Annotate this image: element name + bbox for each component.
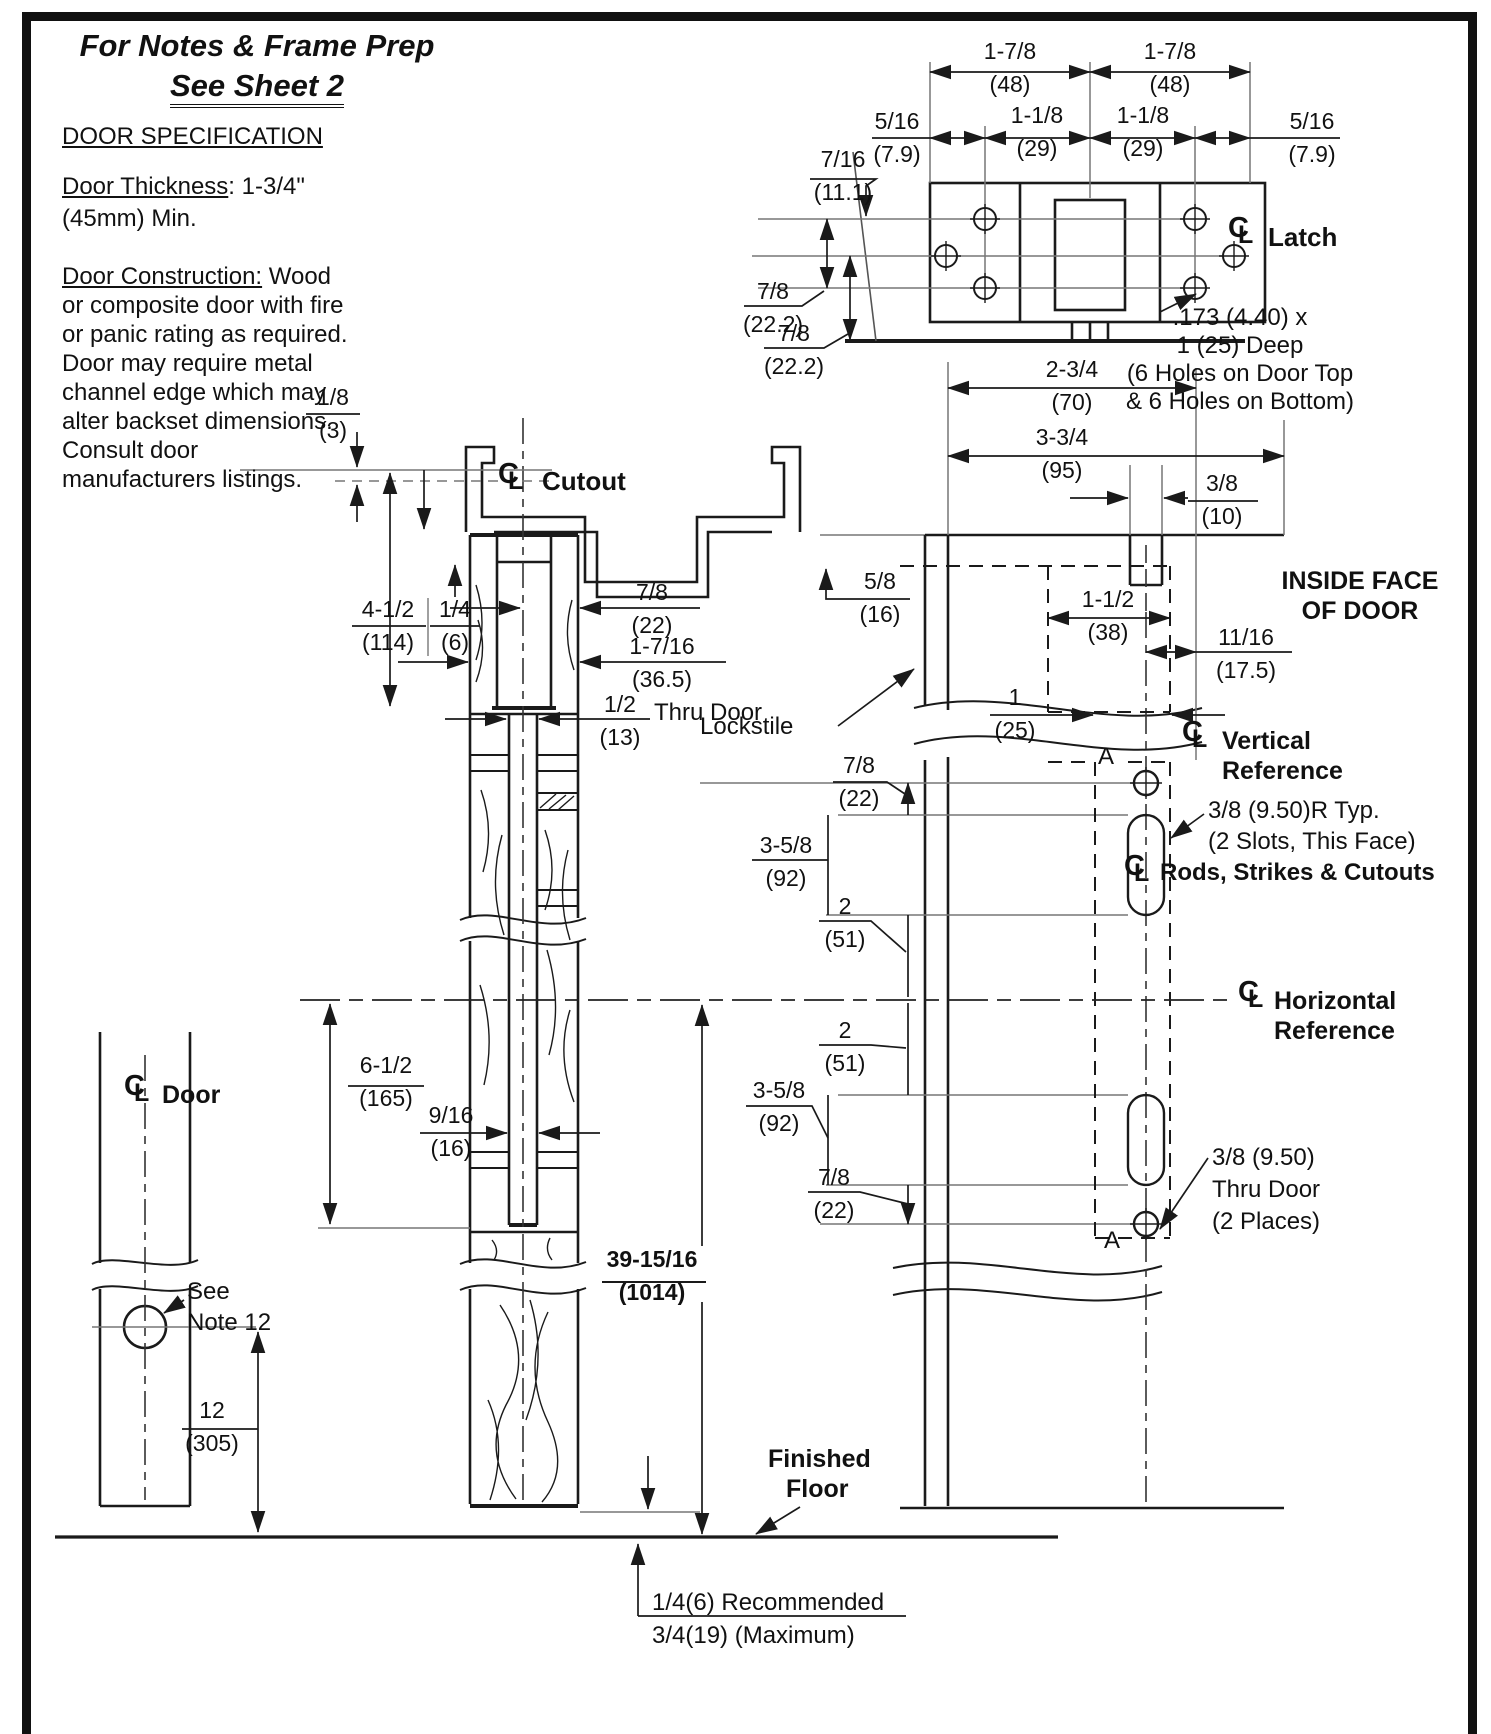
dimension-label: 1(25) — [940, 684, 1090, 743]
dimension-metric: (11.1) — [768, 179, 918, 205]
dimension-metric: (51) — [770, 1050, 920, 1076]
dimension-label: 1-1/8(29) — [1068, 102, 1218, 161]
dimension-metric: (1014) — [577, 1279, 727, 1305]
dimension-label: 1-1/2(38) — [1033, 586, 1183, 645]
latch-label: Latch — [1268, 222, 1337, 253]
dimension-metric: (51) — [770, 926, 920, 952]
dimension-metric: (22.2) — [719, 353, 869, 379]
dimension-metric: (16) — [376, 1135, 526, 1161]
dimension-value: 7/8 — [778, 320, 810, 346]
dimension-metric: (22) — [784, 785, 934, 811]
dimension-value: 1-1/8 — [1011, 102, 1063, 128]
dimension-value: 2 — [839, 1017, 852, 1043]
dimension-label: 2(51) — [770, 1017, 920, 1076]
spec-construction: Door Construction: Wood or composite doo… — [62, 262, 348, 494]
spec-heading: DOOR SPECIFICATION — [62, 122, 323, 151]
rods-label: Rods, Strikes & Cutouts — [1160, 858, 1435, 888]
dimension-metric: (165) — [311, 1085, 461, 1111]
dimension-value: 3-5/8 — [760, 832, 812, 858]
dimension-metric: (36.5) — [587, 666, 737, 692]
dimension-value: 1-1/2 — [1082, 586, 1134, 612]
dimension-metric: (22) — [759, 1197, 909, 1223]
floor-gap-note: 1/4(6) Recommended3/4(19) (Maximum) — [652, 1586, 884, 1652]
dimension-label: 3-3/4(95) — [987, 424, 1137, 483]
dimension-value: 3/8 — [1206, 470, 1238, 496]
dimension-metric: (38) — [1033, 619, 1183, 645]
dimension-value: 3-3/4 — [1036, 424, 1088, 450]
dimension-value: 7/8 — [843, 752, 875, 778]
dimension-metric: (92) — [711, 865, 861, 891]
see-note: SeeNote 12 — [187, 1276, 271, 1338]
dimension-value: 1 — [1009, 684, 1022, 710]
dimension-label: 12(305) — [137, 1397, 287, 1456]
dimension-metric: (48) — [1095, 71, 1245, 97]
cutout-label: Cutout — [542, 466, 626, 497]
horizontal-ref-label: HorizontalReference — [1274, 986, 1396, 1046]
dimension-value: 2-3/4 — [1046, 356, 1098, 382]
dimension-label: 1-7/8(48) — [935, 38, 1085, 97]
dimension-metric: (48) — [935, 71, 1085, 97]
dimension-value: 1/2 — [604, 691, 636, 717]
dimension-label: 1-7/16(36.5) — [587, 633, 737, 692]
finished-floor-label: FinishedFloor — [768, 1444, 871, 1504]
dimension-value: 5/8 — [864, 568, 896, 594]
dimension-metric: (16) — [805, 601, 955, 627]
dimension-value: 7/16 — [821, 146, 866, 172]
dimension-metric: (92) — [704, 1110, 854, 1136]
dimension-metric: (3) — [258, 417, 408, 443]
centerline-icon-horizontal-ref: CL — [1238, 976, 1272, 1016]
dimension-label: 11/16(17.5) — [1171, 624, 1321, 683]
notes-title-line1: For Notes & Frame Prep — [62, 28, 452, 64]
dimension-value: 1-7/8 — [1144, 38, 1196, 64]
dimension-value: 12 — [199, 1397, 225, 1423]
dimension-metric: (95) — [987, 457, 1137, 483]
dimension-label: 2(51) — [770, 893, 920, 952]
dimension-metric: (305) — [137, 1430, 287, 1456]
spec-thickness-line2: (45mm) Min. — [62, 204, 197, 233]
dimension-label: 6-1/2(165) — [311, 1052, 461, 1111]
marker-a-lower: A — [1104, 1226, 1120, 1255]
centerline-icon-latch: CL — [1228, 212, 1262, 252]
dimension-label: 7/8(22.2) — [719, 320, 869, 379]
dimension-metric: (17.5) — [1171, 657, 1321, 683]
centerline-icon-vertical-ref: CL — [1182, 716, 1216, 756]
centerline-icon-cutout: CL — [498, 458, 532, 498]
dimension-value: 1/8 — [317, 384, 349, 410]
vertical-ref-label: VerticalReference — [1222, 726, 1343, 786]
dimension-label: 3/8(10) — [1147, 470, 1297, 529]
dimension-metric: (10) — [1147, 503, 1297, 529]
dimension-label: 7/16(11.1) — [768, 146, 918, 205]
dimension-label: 1/2(13) — [545, 691, 695, 750]
dimension-label: 1/8(3) — [258, 384, 408, 443]
dimension-value: 3-5/8 — [753, 1077, 805, 1103]
dimension-value: 5/16 — [875, 108, 920, 134]
dimension-label: 7/8(22) — [577, 579, 727, 638]
dimension-metric: (6) — [380, 629, 530, 655]
dimension-value: 11/16 — [1218, 624, 1274, 650]
dimension-value: 1-7/8 — [984, 38, 1036, 64]
dimension-metric: (29) — [1068, 135, 1218, 161]
dimension-metric: (7.9) — [1237, 141, 1387, 167]
dimension-label: 3-5/8(92) — [711, 832, 861, 891]
dimension-label: 7/8(22) — [759, 1164, 909, 1223]
dimension-label: 5/16(7.9) — [1237, 108, 1387, 167]
dimension-label: 39-15/16(1014) — [577, 1246, 727, 1305]
dimension-label: 1/4(6) — [380, 596, 530, 655]
drawing-sheet: For Notes & Frame Prep See Sheet 2 DOOR … — [0, 0, 1491, 1734]
dimension-value: 6-1/2 — [360, 1052, 412, 1078]
dimension-label: 1-7/8(48) — [1095, 38, 1245, 97]
marker-a-upper: A — [1098, 742, 1114, 771]
dimension-value: 7/8 — [636, 579, 668, 605]
dimension-label: 7/8(22) — [784, 752, 934, 811]
dimension-value: 1-7/16 — [629, 633, 694, 659]
dimension-label: 2-3/4(70) — [997, 356, 1147, 415]
spec-thickness: Door Thickness: 1-3/4" — [62, 172, 305, 201]
inside-face-label: INSIDE FACEOF DOOR — [1250, 566, 1470, 626]
notes-title-line2: See Sheet 2 — [62, 68, 452, 104]
slot-note: 3/8 (9.50)R Typ.(2 Slots, This Face) — [1208, 795, 1416, 857]
dimension-metric: (25) — [940, 717, 1090, 743]
dimension-value: 5/16 — [1290, 108, 1335, 134]
centerline-icon-door: CL — [124, 1070, 158, 1110]
dimension-value: 39-15/16 — [607, 1246, 698, 1272]
dimension-value: 1-1/8 — [1117, 102, 1169, 128]
dimension-value: 2 — [839, 893, 852, 919]
dimension-metric: (70) — [997, 389, 1147, 415]
dimension-metric: (13) — [545, 724, 695, 750]
dimension-value: 7/8 — [818, 1164, 850, 1190]
dimension-value: 7/8 — [757, 278, 789, 304]
door-label: Door — [162, 1080, 220, 1110]
thru-door-note: 3/8 (9.50)Thru Door(2 Places) — [1212, 1142, 1320, 1238]
dimension-label: 5/8(16) — [805, 568, 955, 627]
dimension-value: 1/4 — [439, 596, 471, 622]
dimension-label: 3-5/8(92) — [704, 1077, 854, 1136]
centerline-icon-rods: CL — [1124, 850, 1158, 890]
